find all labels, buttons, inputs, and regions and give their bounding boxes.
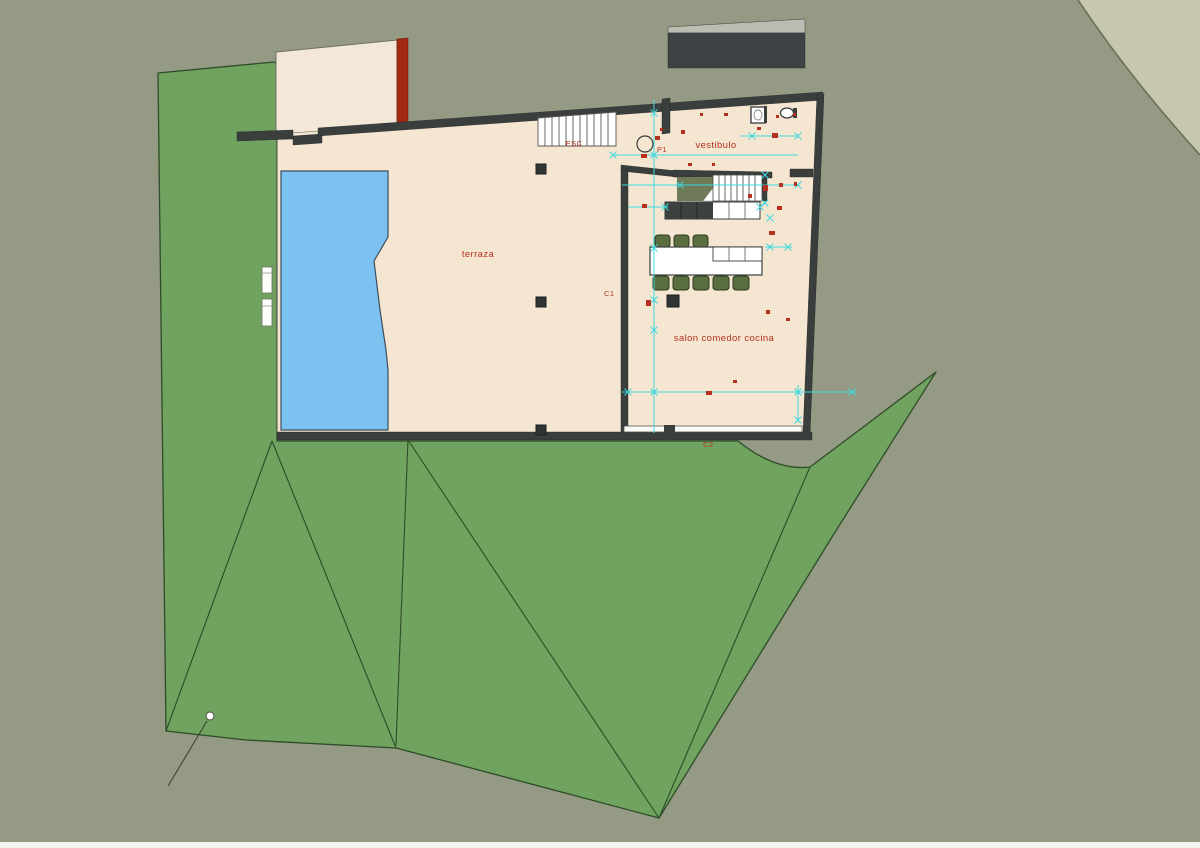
vestibule-label: vestibulo [695, 140, 736, 151]
fixture-divider-wall [764, 106, 767, 123]
p1-label: P1 [657, 145, 667, 154]
chair [674, 235, 689, 247]
dimension-text-mark [642, 204, 647, 208]
east-wall-stub [790, 169, 813, 177]
sink [751, 107, 765, 123]
floor-plan-drawing: terraza vestibulo salon comedor cocina E… [0, 0, 1200, 848]
canopy-roof [668, 33, 805, 68]
chair [733, 276, 749, 290]
column [536, 164, 546, 174]
terrace-label: terraza [462, 249, 495, 260]
page-bottom-strip [0, 842, 1200, 848]
dimension-text-mark [757, 127, 761, 130]
lounger [262, 267, 272, 293]
dimension-text-mark [766, 310, 770, 314]
dimension-text-mark [772, 133, 778, 138]
dimension-text-mark [660, 128, 663, 131]
north-wall-left-segment [237, 130, 293, 141]
living-room-label: salon comedor cocina [674, 333, 775, 344]
kitchen-counter [665, 202, 760, 219]
dimension-text-mark [724, 113, 728, 116]
column-circle-p1 [637, 136, 653, 152]
chair [653, 276, 669, 290]
table-extension [713, 247, 762, 261]
swimming-pool [281, 171, 388, 430]
dimension-text-mark [776, 115, 779, 118]
dimension-text-mark [706, 391, 712, 395]
south-glass-wall [624, 426, 802, 432]
counter-dark-cells [665, 202, 713, 219]
dimension-text-mark [712, 163, 715, 166]
dimension-text-mark [655, 136, 660, 140]
chair [693, 235, 708, 247]
dimension-text-mark [777, 206, 782, 210]
column [536, 425, 546, 435]
dimension-text-mark [779, 183, 783, 187]
north-wall-jog [293, 134, 322, 145]
chair [673, 276, 689, 290]
chair [693, 276, 709, 290]
dimension-text-mark [688, 163, 692, 166]
lounger [262, 299, 272, 326]
dimension-text-mark [794, 182, 797, 186]
dimension-text-mark [786, 318, 790, 321]
floor-plan-canvas: terraza vestibulo salon comedor cocina E… [0, 0, 1200, 848]
c2-label: C2 [703, 440, 713, 449]
toilet [781, 108, 794, 118]
upper-volume-block [276, 40, 397, 134]
column [536, 297, 546, 307]
dimension-text-mark [646, 300, 651, 306]
exterior-stairs-label: ESC [566, 139, 583, 148]
dimension-text-mark [763, 185, 768, 191]
dimension-text-mark [700, 113, 703, 116]
dimension-text-mark [641, 154, 647, 158]
dimension-text-mark [733, 380, 737, 383]
c1-label: C1 [604, 289, 614, 298]
dimension-text-mark [681, 130, 685, 134]
red-accent-wall [397, 38, 408, 128]
column [667, 295, 679, 307]
survey-point-dot [206, 712, 214, 720]
dimension-text-mark [793, 113, 796, 116]
dimension-text-mark [769, 231, 775, 235]
south-wall-pier [664, 425, 675, 433]
vestibule-divider-wall [662, 98, 670, 134]
dimension-text-mark [748, 194, 752, 198]
chair [713, 276, 729, 290]
